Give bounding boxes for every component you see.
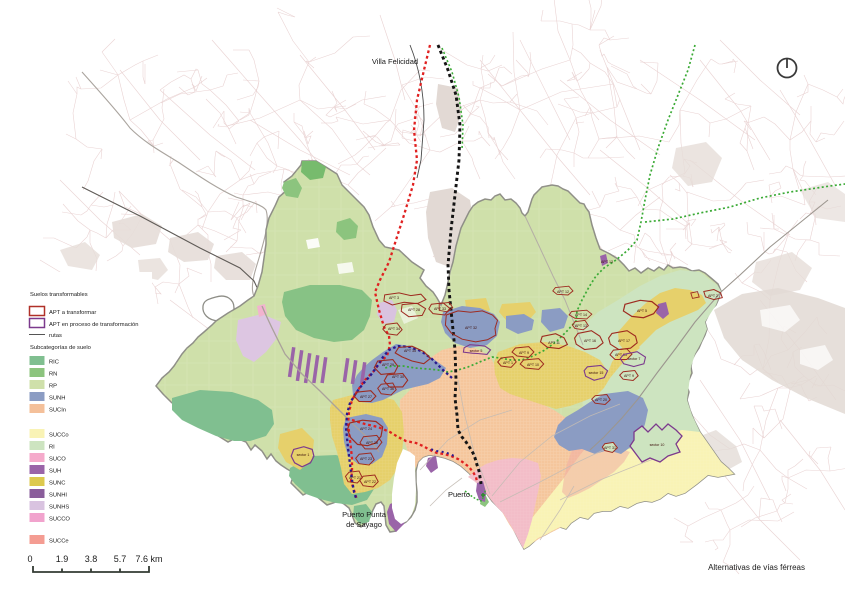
svg-text:0: 0 (27, 554, 32, 564)
svg-text:APT 11: APT 11 (548, 341, 560, 345)
svg-text:RN: RN (49, 372, 57, 378)
svg-text:APT 27: APT 27 (360, 395, 372, 399)
svg-text:de Sayago: de Sayago (346, 520, 382, 529)
svg-text:APT 14: APT 14 (575, 313, 587, 317)
svg-text:APT 24: APT 24 (360, 427, 372, 431)
svg-text:3.8: 3.8 (85, 554, 98, 564)
svg-text:APT 21: APT 21 (349, 476, 361, 480)
svg-text:APT 22: APT 22 (364, 480, 376, 484)
svg-text:Alternativas de vías férreas: Alternativas de vías férreas (708, 563, 805, 572)
svg-text:Subcategorías de suelo: Subcategorías de suelo (30, 345, 91, 351)
svg-text:APT 32: APT 32 (465, 326, 477, 330)
svg-text:APT 25: APT 25 (366, 441, 378, 445)
svg-text:APT en proceso de transformaci: APT en proceso de transformación (49, 322, 138, 328)
svg-text:APT 9: APT 9 (519, 351, 529, 355)
svg-text:sector 10: sector 10 (650, 443, 665, 447)
svg-text:APT 31: APT 31 (604, 446, 616, 450)
svg-text:APT 13: APT 13 (601, 260, 613, 264)
svg-text:SUCO: SUCO (49, 457, 66, 463)
svg-text:APT 17: APT 17 (618, 339, 630, 343)
svg-text:APT 29: APT 29 (382, 363, 394, 367)
svg-text:APT 1: APT 1 (503, 361, 513, 365)
svg-text:APT 3: APT 3 (389, 296, 399, 300)
svg-text:APT 35: APT 35 (404, 349, 416, 353)
svg-text:APT 2: APT 2 (708, 294, 718, 298)
svg-text:rutas: rutas (49, 333, 62, 339)
svg-text:APT 28: APT 28 (408, 308, 420, 312)
svg-text:7.6 km: 7.6 km (135, 554, 162, 564)
svg-text:SUNC: SUNC (49, 481, 65, 487)
svg-text:SUNHI: SUNHI (49, 493, 67, 499)
svg-text:sector 1: sector 1 (297, 453, 310, 457)
svg-text:APT 12: APT 12 (557, 290, 569, 294)
svg-text:RIC: RIC (49, 360, 59, 366)
svg-text:sector 15: sector 15 (589, 371, 604, 375)
svg-text:APT 5: APT 5 (637, 309, 647, 313)
svg-text:RI: RI (49, 445, 55, 451)
svg-text:APT 20: APT 20 (595, 398, 607, 402)
svg-text:SUNH: SUNH (49, 396, 65, 402)
svg-text:SUCIn: SUCIn (49, 408, 66, 414)
svg-text:Puerto Punta: Puerto Punta (342, 510, 387, 519)
svg-text:Puerto: Puerto (448, 490, 470, 499)
svg-text:APT 13: APT 13 (575, 324, 587, 328)
svg-text:APT 23: APT 23 (360, 457, 372, 461)
svg-text:APT 30: APT 30 (392, 375, 404, 379)
svg-text:5.7: 5.7 (114, 554, 127, 564)
svg-text:APT 34: APT 34 (388, 327, 400, 331)
svg-text:APT a transformar: APT a transformar (49, 310, 96, 316)
svg-text:Suelos transformables: Suelos transformables (30, 292, 88, 298)
svg-text:SUCCe: SUCCe (49, 539, 69, 545)
svg-text:sector 5: sector 5 (470, 349, 483, 353)
svg-text:SUCCO: SUCCO (49, 517, 70, 523)
svg-text:RP: RP (49, 384, 57, 390)
svg-text:APT 16: APT 16 (584, 339, 596, 343)
svg-text:1.9: 1.9 (56, 554, 69, 564)
svg-text:APT 10: APT 10 (527, 363, 539, 367)
svg-text:SUNHS: SUNHS (49, 505, 69, 511)
svg-text:APT 9: APT 9 (624, 374, 634, 378)
svg-text:SUH: SUH (49, 469, 61, 475)
svg-text:APT 36: APT 36 (382, 387, 394, 391)
svg-text:Villa Felicidad: Villa Felicidad (372, 57, 418, 66)
svg-text:SUCCo: SUCCo (49, 433, 69, 439)
svg-text:sector 7: sector 7 (628, 357, 641, 361)
